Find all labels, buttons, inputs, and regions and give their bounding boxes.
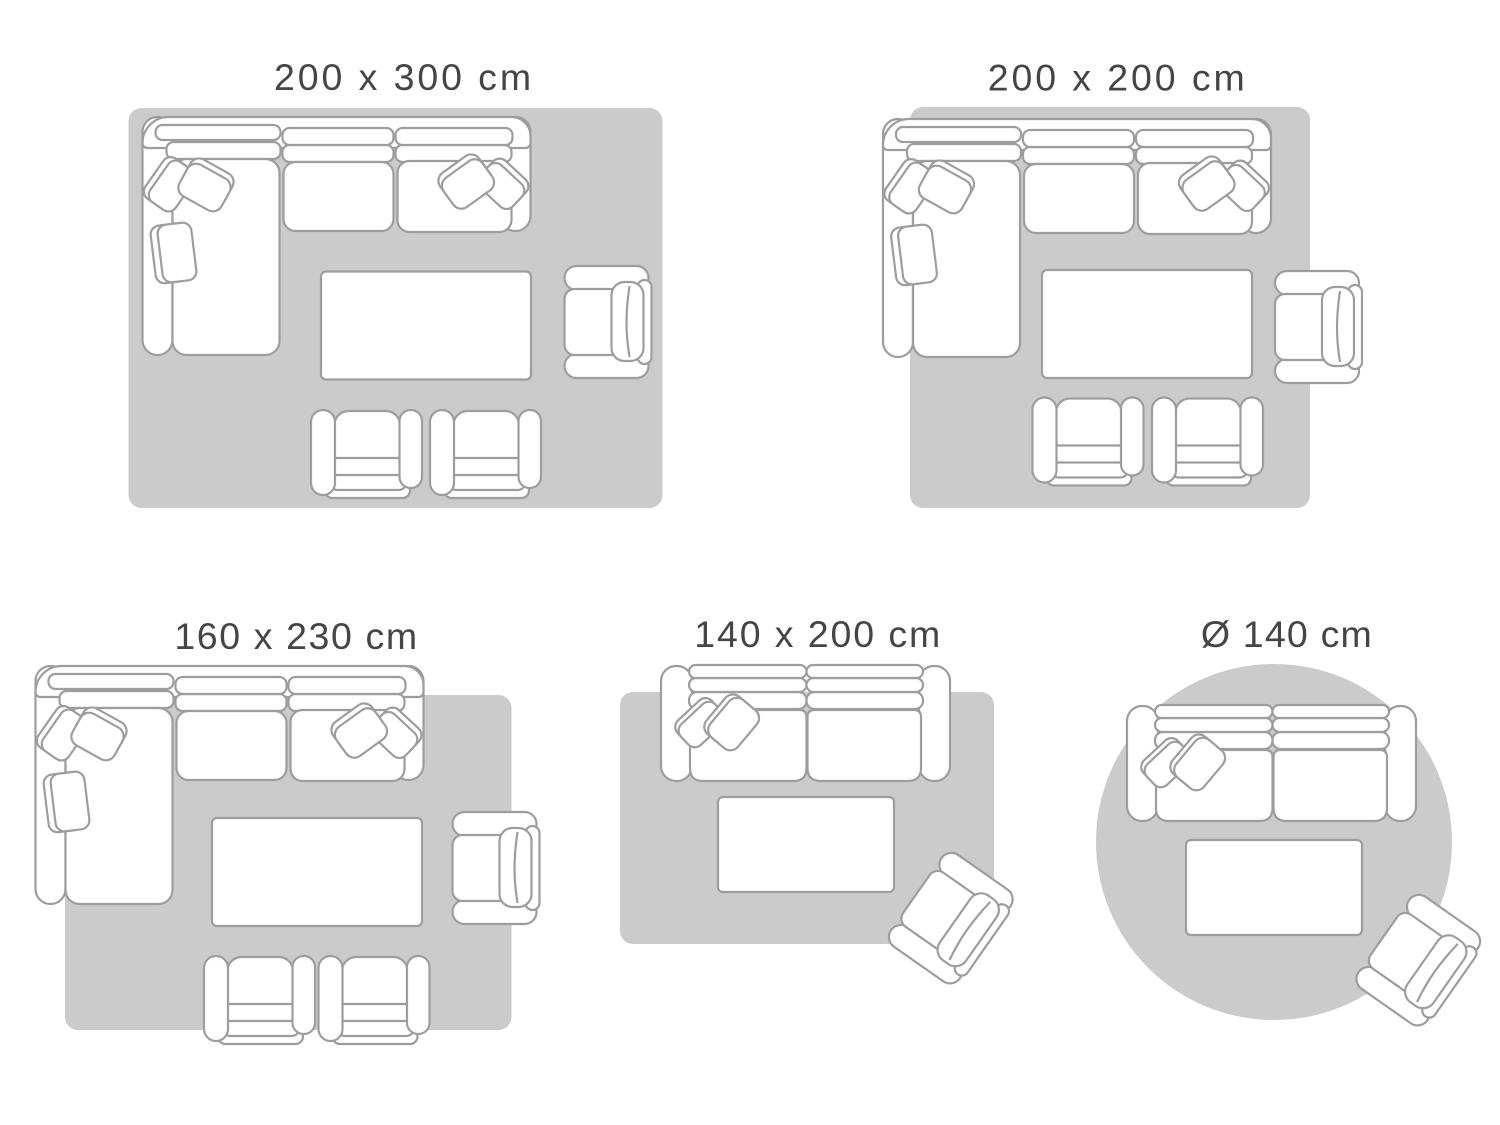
svg-text:200 x 200 cm: 200 x 200 cm <box>988 57 1248 99</box>
svg-text:140 x 200 cm: 140 x 200 cm <box>694 613 942 655</box>
svg-text:200 x 300 cm: 200 x 300 cm <box>274 56 534 98</box>
svg-text:160 x 230 cm: 160 x 230 cm <box>174 615 418 657</box>
svg-text:Ø 140 cm: Ø 140 cm <box>1201 613 1373 655</box>
